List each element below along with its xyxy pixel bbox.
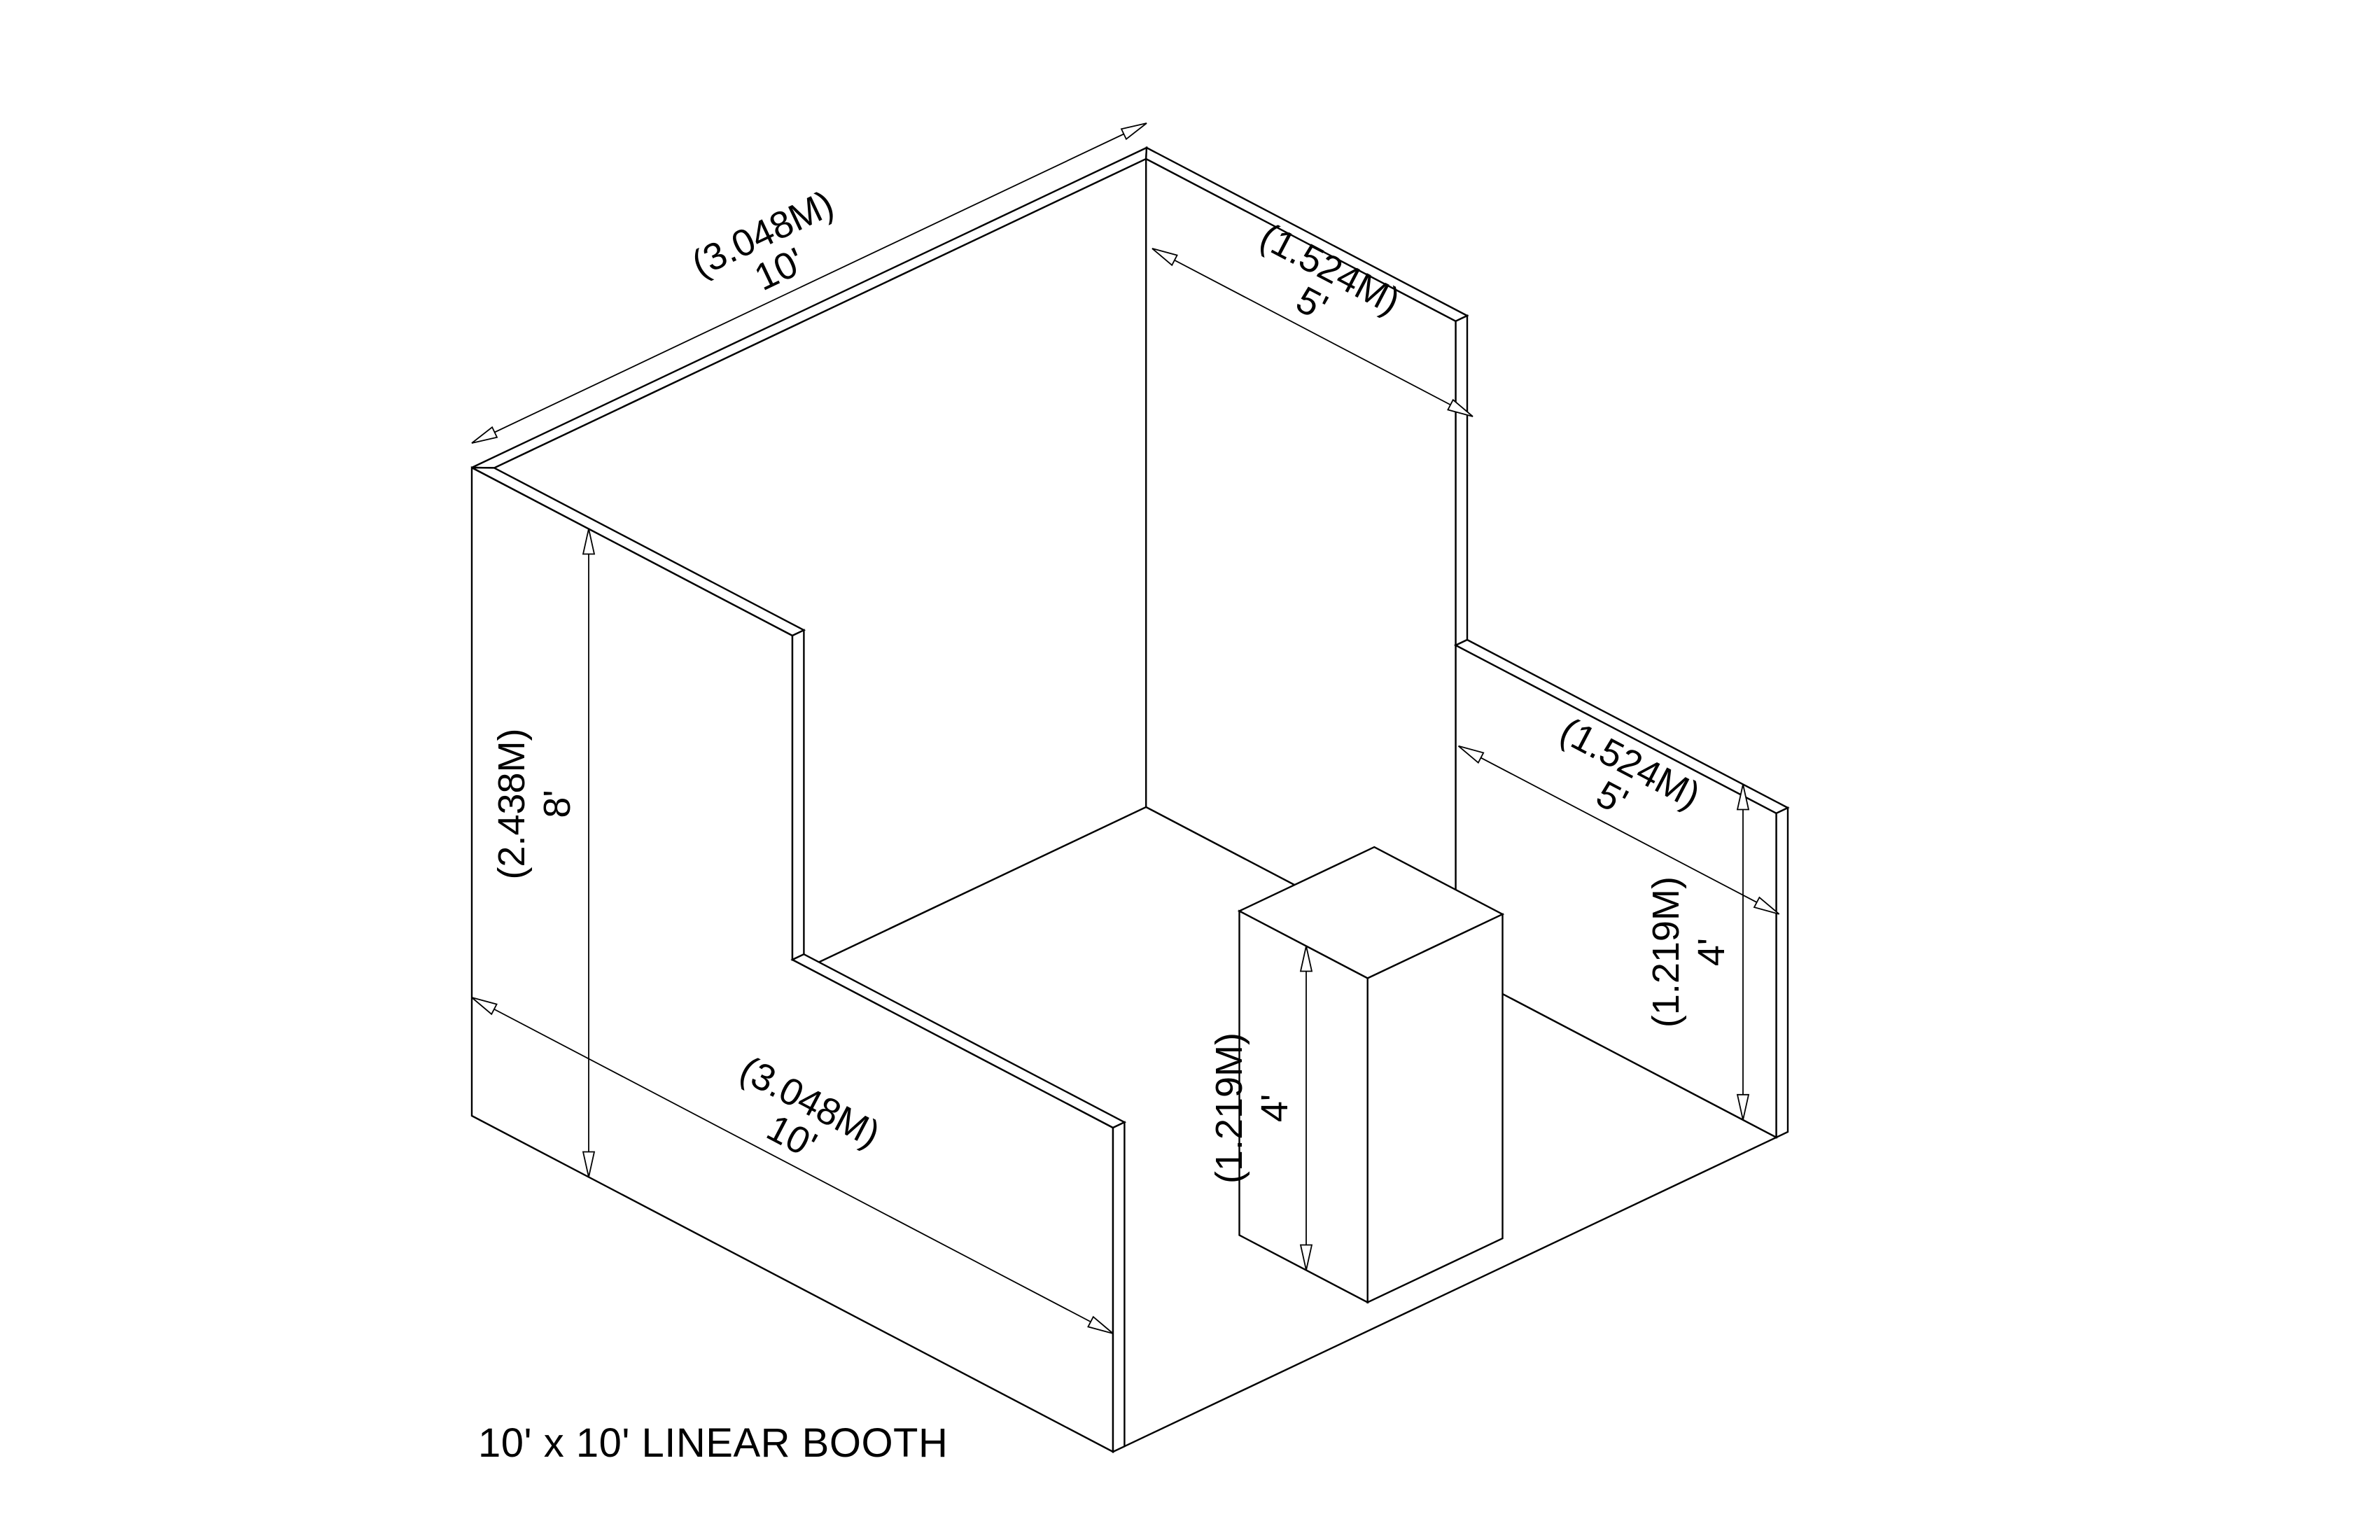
right-rail-end-face (1777, 808, 1788, 1137)
dimension-label: 4' (1254, 1094, 1296, 1122)
dimension-label: (2.438M) (491, 728, 533, 879)
left-wall-step-face (792, 630, 804, 960)
dimension-label: (1.219M) (1208, 1032, 1250, 1184)
dimension-arrow-icon (1121, 123, 1147, 139)
drawing-canvas: (3.048M)10'(2.438M)8'(1.524M)5'(1.524M)5… (0, 0, 2380, 1540)
dimension-label: 8' (536, 790, 578, 818)
dimension-arrow-icon (472, 427, 497, 443)
drawing-title: 10' x 10' LINEAR BOOTH (478, 1420, 948, 1466)
pedestal (1240, 847, 1503, 1302)
dimension-label: (1.219M) (1645, 876, 1687, 1028)
dimension-label: 4' (1690, 938, 1732, 966)
pedestal-front-face (1368, 914, 1503, 1302)
left-wall-end-face (1113, 1122, 1124, 1452)
booth-isometric-drawing: (3.048M)10'(2.438M)8'(1.524M)5'(1.524M)5… (0, 0, 2380, 1540)
right-wall-tall-end-face (1456, 316, 1467, 645)
